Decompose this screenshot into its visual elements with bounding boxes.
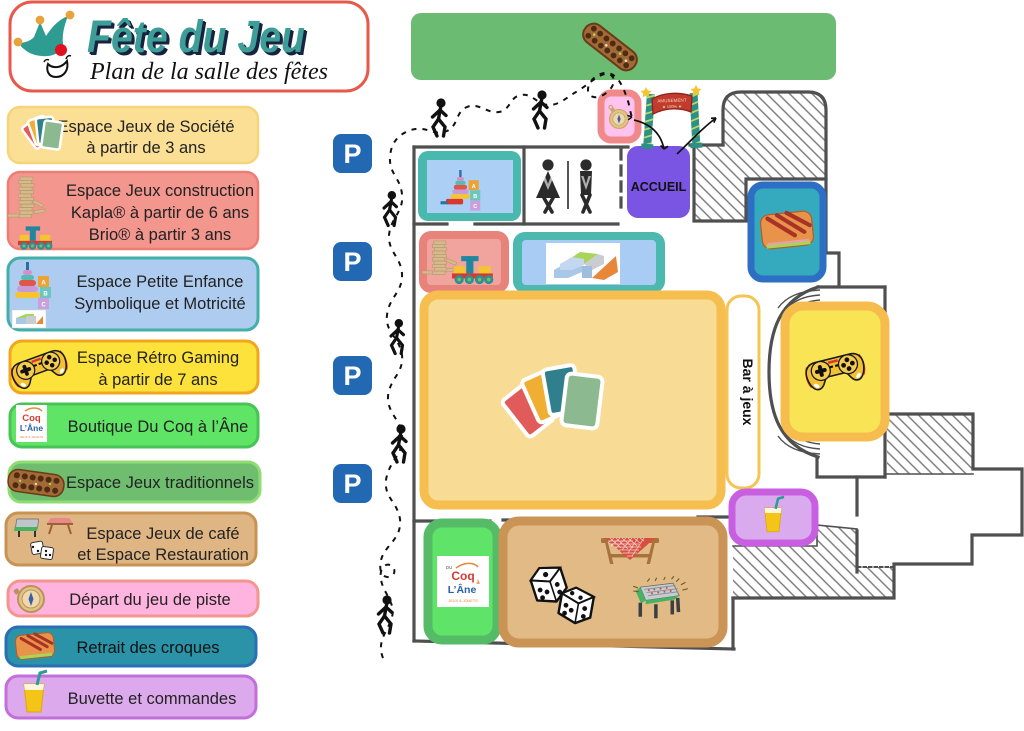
svg-text:A: A (41, 281, 46, 287)
svg-text:P: P (343, 139, 361, 169)
svg-text:Coq: Coq (451, 569, 474, 583)
svg-text:A: A (472, 184, 476, 190)
svg-text:P: P (343, 469, 361, 499)
svg-text:P: P (343, 247, 361, 277)
svg-text:Boutique Du Coq à l’Âne: Boutique Du Coq à l’Âne (68, 417, 249, 436)
svg-text:L’Âne: L’Âne (20, 422, 43, 433)
svg-text:Espace Jeux de Société: Espace Jeux de Société (57, 118, 234, 136)
svg-text:AMUSEMENT: AMUSEMENT (657, 97, 687, 103)
svg-text:L’Âne: L’Âne (448, 583, 477, 596)
svg-text:C: C (473, 204, 477, 210)
svg-text:C: C (41, 303, 46, 309)
svg-text:Bar à jeux: Bar à jeux (740, 359, 756, 426)
svg-text:Espace Petite Enfance: Espace Petite Enfance (77, 273, 244, 291)
svg-text:Symbolique et Motricité: Symbolique et Motricité (74, 295, 246, 313)
svg-text:Buvette et commandes: Buvette et commandes (68, 690, 237, 708)
svg-text:★ 100% ★: ★ 100% ★ (662, 104, 682, 110)
svg-text:Kapla® à partir de 6 ans: Kapla® à partir de 6 ans (71, 204, 249, 222)
svg-text:à partir de 3 ans: à partir de 3 ans (86, 139, 205, 157)
svg-text:Espace Rétro Gaming: Espace Rétro Gaming (77, 349, 239, 367)
svg-text:Espace Jeux traditionnels: Espace Jeux traditionnels (66, 474, 254, 492)
svg-text:ACCUEIL: ACCUEIL (631, 180, 687, 194)
svg-text:B: B (43, 292, 48, 298)
svg-text:Retrait des croques: Retrait des croques (76, 639, 219, 657)
svg-text:Espace Jeux construction: Espace Jeux construction (66, 182, 254, 200)
svg-text:Brio® à partir 3 ans: Brio® à partir 3 ans (89, 226, 231, 244)
svg-text:JEUX & JOUETS: JEUX & JOUETS (448, 599, 478, 603)
svg-text:et Espace Restauration: et Espace Restauration (77, 546, 249, 564)
svg-text:Plan de la salle des fêtes: Plan de la salle des fêtes (89, 59, 328, 85)
svg-text:Fête du Jeu: Fête du Jeu (87, 11, 305, 62)
svg-text:à partir de 7 ans: à partir de 7 ans (98, 371, 217, 389)
svg-text:JEUX & JOUETS: JEUX & JOUETS (20, 435, 43, 439)
svg-text:P: P (343, 361, 361, 391)
svg-text:B: B (473, 194, 477, 200)
svg-text:Départ du jeu de piste: Départ du jeu de piste (69, 591, 230, 609)
svg-text:Espace Jeux de café: Espace Jeux de café (86, 525, 239, 543)
